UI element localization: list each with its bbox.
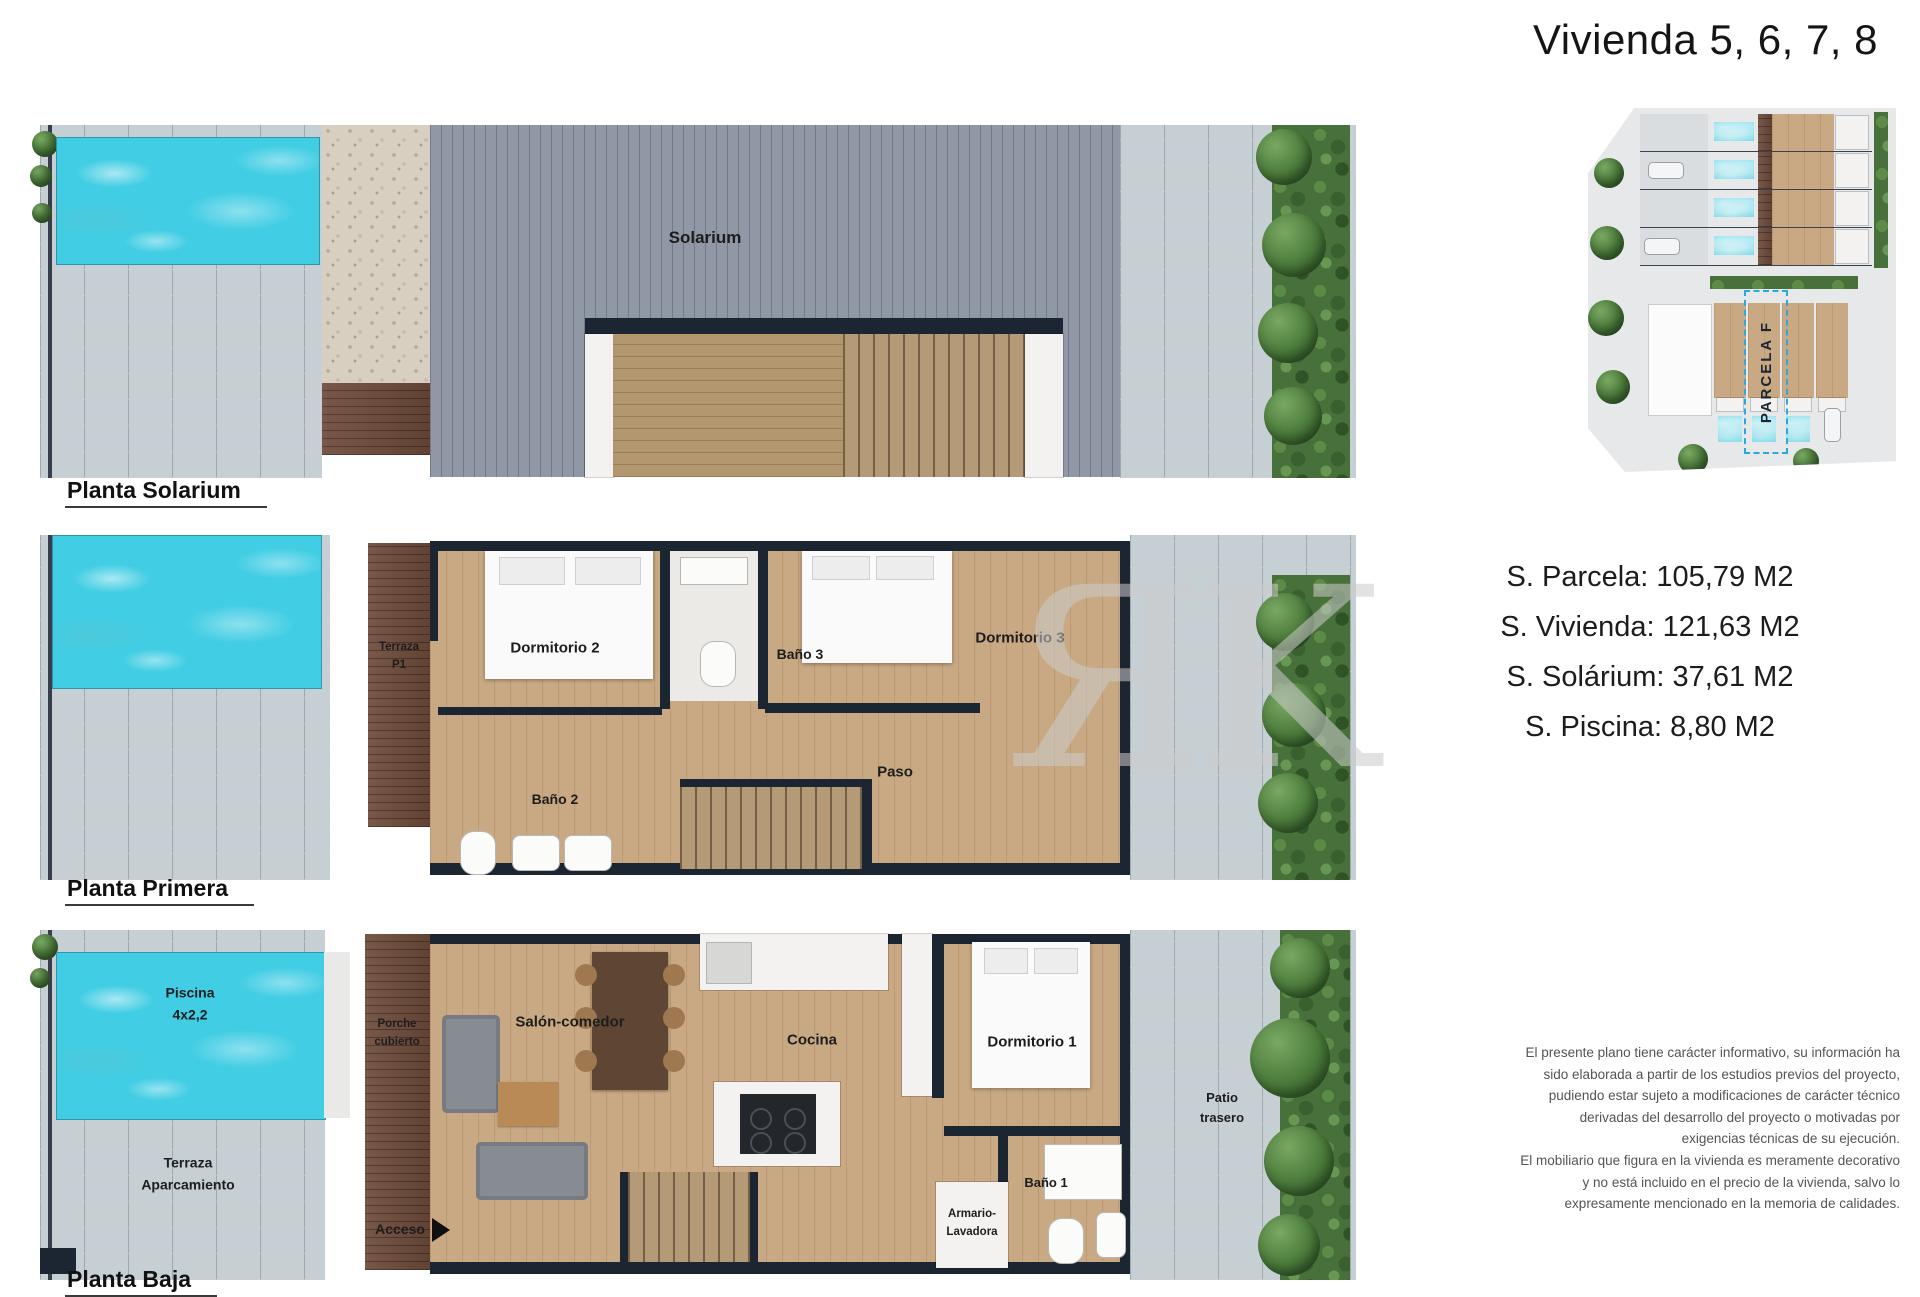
parcel-label: PARCELA F bbox=[1758, 321, 1775, 423]
pillow bbox=[1034, 948, 1078, 974]
wood-deck-small bbox=[322, 383, 430, 455]
disclaimer-paragraph: El presente plano tiene carácter informa… bbox=[1520, 1042, 1900, 1150]
tree-icon bbox=[1264, 387, 1322, 445]
site-unit-row bbox=[1640, 152, 1872, 190]
sink bbox=[1096, 1212, 1126, 1258]
pool-small bbox=[1714, 236, 1754, 255]
wall bbox=[932, 934, 944, 1098]
room-label-bano-1: Baño 1 bbox=[1024, 1173, 1067, 1193]
toilet bbox=[1048, 1218, 1084, 1264]
pool-small bbox=[1786, 416, 1810, 442]
interior-small bbox=[1714, 303, 1746, 398]
car-icon bbox=[1648, 162, 1684, 179]
area-parcela: S. Parcela: 105,79 M2 bbox=[1470, 556, 1830, 598]
room-label-paso: Paso bbox=[877, 760, 913, 783]
stair-recess bbox=[585, 318, 1063, 477]
site-unit-row bbox=[1640, 228, 1872, 266]
tree-icon bbox=[1594, 158, 1624, 188]
bed bbox=[485, 551, 653, 679]
wardrobe bbox=[902, 934, 932, 1096]
landing bbox=[1025, 334, 1063, 477]
burner bbox=[750, 1132, 772, 1154]
chair bbox=[663, 1007, 685, 1029]
wall bbox=[758, 541, 768, 709]
area-vivienda: S. Vivienda: 121,63 M2 bbox=[1470, 606, 1830, 648]
plan-primera: Terraza P1 Dormitorio 2 Baño 3 Dormitori… bbox=[40, 535, 1356, 880]
cooktop bbox=[740, 1094, 816, 1154]
chair bbox=[663, 1050, 685, 1072]
pool-small bbox=[1714, 160, 1754, 179]
room-label-solarium: Solarium bbox=[669, 225, 742, 251]
bath-small bbox=[1836, 192, 1868, 225]
fridge bbox=[706, 942, 752, 984]
wall bbox=[620, 1172, 628, 1264]
bath-small bbox=[1785, 398, 1811, 411]
bed bbox=[972, 942, 1090, 1088]
pillow bbox=[499, 557, 565, 585]
wall bbox=[944, 1126, 1130, 1136]
tree-icon bbox=[1262, 683, 1326, 747]
wall bbox=[750, 1172, 758, 1264]
sofa bbox=[476, 1142, 588, 1200]
area-solarium: S. Solárium: 37,61 M2 bbox=[1470, 656, 1830, 698]
sink bbox=[512, 835, 560, 871]
burner bbox=[784, 1108, 806, 1130]
driveway bbox=[1640, 114, 1708, 151]
tree-icon bbox=[1262, 213, 1326, 277]
room-label-acceso: Acceso bbox=[375, 1219, 425, 1241]
wall bbox=[430, 1262, 1130, 1274]
sofa bbox=[442, 1015, 500, 1113]
room-label-dormitorio-3: Dormitorio 3 bbox=[975, 626, 1064, 649]
toilet bbox=[700, 641, 736, 687]
plant-icon bbox=[32, 131, 58, 157]
chair bbox=[575, 1050, 597, 1072]
tree-icon bbox=[1250, 1018, 1330, 1098]
wall bbox=[862, 779, 872, 875]
interior-small bbox=[1772, 114, 1834, 151]
plant-icon bbox=[30, 968, 50, 988]
tree-icon bbox=[1258, 1214, 1320, 1276]
disclaimer-paragraph: El mobiliario que figura en la vivienda … bbox=[1520, 1150, 1900, 1215]
wall bbox=[430, 541, 438, 641]
tree-icon bbox=[1588, 300, 1624, 336]
room-label-terraza-p1: Terraza P1 bbox=[379, 639, 419, 675]
site-plan: PARCELA F bbox=[1588, 108, 1896, 472]
room-label-patio: Patio trasero bbox=[1200, 1088, 1244, 1128]
wall bbox=[765, 703, 980, 713]
bath-small bbox=[1836, 116, 1868, 149]
car-icon bbox=[1644, 238, 1680, 255]
room-label-cocina: Cocina bbox=[787, 1028, 837, 1051]
tree-icon bbox=[1596, 370, 1630, 404]
pool-small bbox=[1714, 122, 1754, 141]
stairs bbox=[843, 334, 1025, 477]
pool bbox=[52, 535, 322, 689]
toilet bbox=[460, 831, 496, 875]
room-label-porche: Porche cubierto bbox=[374, 1016, 419, 1052]
tree-icon bbox=[1258, 773, 1318, 833]
pool bbox=[56, 137, 320, 265]
pillow bbox=[812, 556, 870, 580]
driveway bbox=[1640, 190, 1708, 227]
deck-small bbox=[1758, 152, 1772, 189]
bath-small bbox=[1836, 154, 1868, 187]
plan-solarium: Solarium bbox=[40, 125, 1356, 478]
pool-small bbox=[1718, 416, 1742, 442]
plan-caption-primera: Planta Primera bbox=[65, 875, 254, 906]
wall bbox=[1120, 541, 1130, 875]
interior-small bbox=[1772, 228, 1834, 265]
room-label-armario: Armario- Lavadora bbox=[946, 1206, 997, 1242]
site-unit-row bbox=[1640, 114, 1872, 152]
wall bbox=[660, 541, 670, 709]
pillow bbox=[876, 556, 934, 580]
plan-caption-baja: Planta Baja bbox=[65, 1266, 217, 1297]
hedge bbox=[1874, 112, 1888, 268]
tree-icon bbox=[1590, 226, 1624, 260]
tree-icon bbox=[1793, 448, 1819, 474]
room-label-piscina: Piscina 4x2,2 bbox=[165, 982, 214, 1025]
tree-icon bbox=[1264, 1126, 1334, 1196]
tree-icon bbox=[1678, 444, 1708, 474]
room-label-dormitorio-1: Dormitorio 1 bbox=[987, 1030, 1076, 1053]
tree-icon bbox=[1256, 129, 1312, 185]
sink bbox=[680, 557, 748, 585]
room-label-bano-2: Baño 2 bbox=[532, 789, 579, 811]
sink bbox=[564, 835, 612, 871]
hedge bbox=[1710, 276, 1858, 289]
deck-small bbox=[1758, 114, 1772, 151]
tree-icon bbox=[1258, 303, 1318, 363]
burner bbox=[750, 1108, 772, 1130]
stairs bbox=[680, 787, 862, 869]
area-summary: S. Parcela: 105,79 M2 S. Vivienda: 121,6… bbox=[1470, 556, 1830, 756]
car-icon bbox=[1824, 408, 1841, 442]
parcel-highlight: PARCELA F bbox=[1744, 290, 1788, 454]
building-roof bbox=[1648, 304, 1712, 416]
wall bbox=[430, 541, 1130, 551]
interior-small bbox=[1772, 152, 1834, 189]
room-label-dormitorio-2: Dormitorio 2 bbox=[510, 636, 599, 659]
terraza-deck bbox=[368, 543, 430, 827]
plant-icon bbox=[30, 165, 52, 187]
stairs bbox=[628, 1172, 750, 1262]
bath-small bbox=[1717, 398, 1743, 411]
tree-icon bbox=[1270, 938, 1330, 998]
burner bbox=[784, 1132, 806, 1154]
entrance-arrow-icon bbox=[432, 1218, 450, 1242]
room-label-bano-3: Baño 3 bbox=[777, 644, 824, 666]
room-label-terraza-aparcamiento: Terraza Aparcamiento bbox=[141, 1152, 234, 1195]
pool-small bbox=[1714, 198, 1754, 217]
wall bbox=[585, 318, 1063, 334]
plant-icon bbox=[32, 203, 52, 223]
room-label-salon: Salón-comedor bbox=[515, 1010, 624, 1033]
interior-small bbox=[1772, 190, 1834, 227]
deck-small bbox=[1758, 228, 1772, 265]
tree-icon bbox=[1256, 593, 1314, 651]
interior-small bbox=[1816, 303, 1848, 398]
site-upper-block bbox=[1640, 114, 1872, 266]
bed bbox=[802, 551, 952, 663]
pillow bbox=[575, 557, 641, 585]
pillow bbox=[984, 948, 1028, 974]
site-unit-row bbox=[1640, 190, 1872, 228]
plan-baja: Piscina 4x2,2 Terraza Aparcamiento Porch… bbox=[40, 930, 1356, 1280]
area-piscina: S. Piscina: 8,80 M2 bbox=[1470, 706, 1830, 748]
disclaimer: El presente plano tiene carácter informa… bbox=[1520, 1042, 1900, 1215]
pool-edge bbox=[324, 952, 350, 1118]
plant-icon bbox=[32, 934, 58, 960]
plan-caption-solarium: Planta Solarium bbox=[65, 477, 267, 508]
wood-terrace bbox=[613, 334, 843, 477]
landing bbox=[585, 334, 613, 477]
gravel-strip bbox=[322, 125, 430, 383]
wall bbox=[680, 779, 862, 787]
chair bbox=[663, 964, 685, 986]
page-title: Vivienda 5, 6, 7, 8 bbox=[1533, 16, 1878, 64]
pool bbox=[56, 952, 326, 1120]
chair bbox=[575, 964, 597, 986]
deck-small bbox=[1758, 190, 1772, 227]
wall bbox=[438, 707, 662, 715]
bath-small bbox=[1836, 230, 1868, 263]
coffee-table bbox=[498, 1082, 558, 1126]
